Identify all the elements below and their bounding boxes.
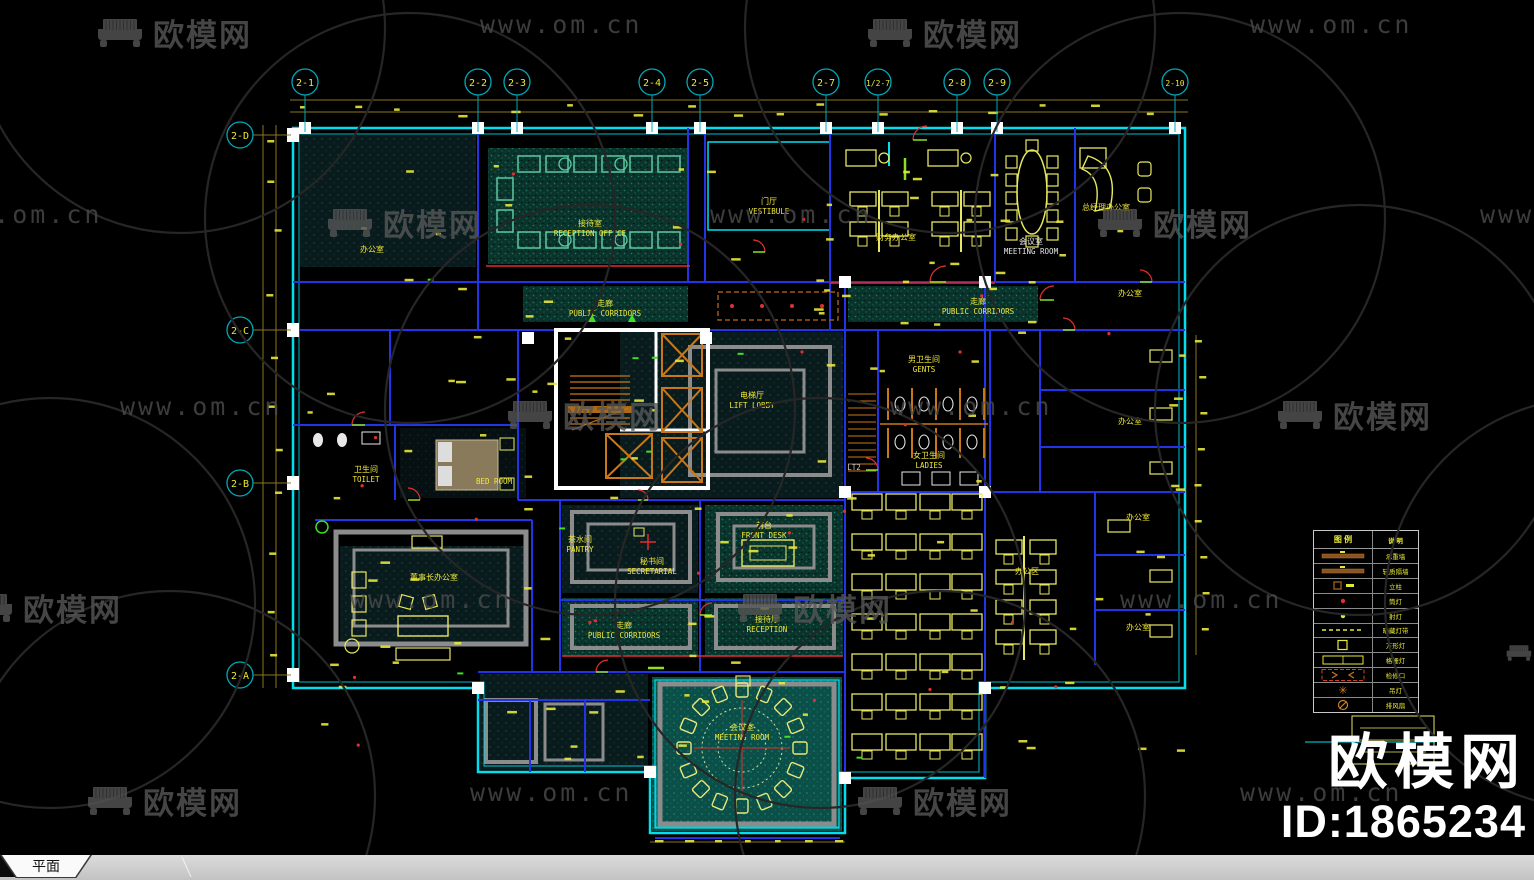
svg-text:2-D: 2-D	[231, 131, 249, 142]
legend-row: 暗藏灯带	[1314, 624, 1418, 639]
legend-row: 检修口	[1314, 668, 1418, 683]
room-label-cn: 董事长办公室	[410, 572, 458, 582]
svg-text:2-B: 2-B	[231, 479, 249, 490]
legend-row-label: 排风扇	[1373, 698, 1418, 712]
room-label-cn: 会议室	[730, 722, 754, 732]
room-label-cn: 接待厅	[755, 614, 779, 624]
room-label-en: MEETING ROOM	[1004, 247, 1059, 256]
legend-row: 轻质隔墙	[1314, 564, 1418, 579]
legend-symbol-sq	[1314, 638, 1373, 652]
room-label-cn: 办公室	[1118, 416, 1142, 426]
room-label-cn: 财务办公室	[876, 232, 916, 242]
legend-symbol-dash	[1314, 624, 1373, 638]
legend-symbol-dotr	[1314, 594, 1373, 608]
legend-symbol-doty	[1314, 609, 1373, 623]
room-label-en: LIFT LOBBY	[729, 401, 775, 410]
site-badge: 欧模网 ID:1865234	[1281, 733, 1526, 844]
room-label-en: FRONT DESK	[741, 531, 787, 540]
legend-row-label: 射灯	[1373, 609, 1418, 623]
svg-text:2-C: 2-C	[231, 326, 249, 337]
room-label-en: RECEPTION OFFICE	[554, 229, 627, 238]
room-label-en: LT2	[847, 463, 861, 472]
room-label-en: LADIES	[915, 461, 943, 470]
legend-row: 方形灯	[1314, 638, 1418, 653]
site-brand-text: 欧模网	[1281, 733, 1526, 793]
tab-plan-border[interactable]: 平面	[0, 855, 92, 878]
legend-row: 射灯	[1314, 609, 1418, 624]
room-label-en: SECRETARIAL	[627, 567, 677, 576]
legend-row-label: 吊灯	[1373, 683, 1418, 697]
svg-text:2-A: 2-A	[231, 671, 249, 682]
room-label-cn: 会议室	[1019, 236, 1043, 246]
legend-symbol-sqb	[1314, 579, 1373, 593]
room-label-en: RECEPTION	[747, 625, 788, 634]
legend-row-label: 暗藏灯带	[1373, 624, 1418, 638]
model-id-text: ID:1865234	[1281, 799, 1526, 844]
legend-row: 筒灯	[1314, 594, 1418, 609]
legend-header-symbol: 图 例	[1314, 531, 1373, 548]
room-label-cn: 男卫生间	[908, 354, 940, 364]
legend-table: 图 例 说 明 承重墙 轻质隔墙 立柱 筒灯 射灯 暗藏灯带 方形灯 格栅灯	[1313, 530, 1419, 713]
room-label-en: GENTS	[913, 365, 936, 374]
legend-symbol-dashbox	[1314, 668, 1373, 682]
svg-text:2-9: 2-9	[988, 78, 1006, 89]
tab-edge-decoration	[168, 857, 192, 877]
legend-row-label: 检修口	[1373, 668, 1418, 682]
room-label-cn: 卫生间	[354, 464, 378, 474]
cad-preview-stage: 2-12-22-32-42-52-71/2-72-82-92-102-D2-C2…	[0, 0, 1534, 880]
room-label-cn: 接待室	[578, 218, 602, 228]
svg-text:2-4: 2-4	[643, 78, 661, 89]
legend-symbol-slash	[1314, 698, 1373, 712]
room-label-en: PUBLIC CORRIDORS	[588, 631, 661, 640]
svg-text:✳: ✳	[1338, 685, 1347, 696]
legend-row-label: 轻质隔墙	[1373, 564, 1418, 578]
room-label-cn: 办公室	[1126, 512, 1150, 522]
room-label-en: PUBLIC CORRIDORS	[569, 309, 642, 318]
legend-symbol-rect	[1314, 653, 1373, 667]
legend-row: 格栅灯	[1314, 653, 1418, 668]
room-label-cn: 女卫生间	[913, 450, 945, 460]
legend-header-desc: 说 明	[1373, 531, 1418, 548]
room-label-cn: 茶水间	[568, 534, 592, 544]
room-label-cn: 办公室	[360, 244, 384, 254]
legend-row-label: 筒灯	[1373, 594, 1418, 608]
svg-text:2-5: 2-5	[691, 78, 709, 89]
svg-text:2-10: 2-10	[1165, 79, 1184, 88]
room-label-en: PANTRY	[566, 545, 594, 554]
room-label-cn: 门厅	[761, 196, 777, 206]
legend-row-label: 方形灯	[1373, 638, 1418, 652]
svg-text:2-1: 2-1	[296, 78, 314, 89]
room-label-cn: 办公区	[1015, 566, 1039, 576]
room-label-cn: 走廊	[597, 298, 613, 308]
legend-row-label: 立柱	[1373, 579, 1418, 593]
svg-text:2-7: 2-7	[817, 78, 835, 89]
legend-row: 立柱	[1314, 579, 1418, 594]
room-label-cn: 总经理办公室	[1082, 202, 1130, 212]
legend-row: 承重墙	[1314, 549, 1418, 564]
room-label-cn: 走廊	[970, 296, 986, 306]
room-label-cn: 办公室	[1126, 622, 1150, 632]
room-label-en: BED ROOM	[476, 477, 513, 486]
room-label-en: VESTIBULE	[749, 207, 790, 216]
room-label-cn: 办公室	[1118, 288, 1142, 298]
layout-tab-bar: 模型 平面	[0, 855, 1534, 880]
svg-text:1/2-7: 1/2-7	[866, 79, 890, 88]
legend-row-label: 承重墙	[1373, 549, 1418, 563]
room-label-cn: 前台	[756, 520, 772, 530]
room-label-cn: 电梯厅	[740, 390, 764, 400]
legend-symbol-bar	[1314, 564, 1373, 578]
room-label-en: TOILET	[352, 475, 380, 484]
legend-row: 排风扇	[1314, 698, 1418, 712]
svg-text:2-2: 2-2	[469, 78, 487, 89]
svg-text:2-3: 2-3	[508, 78, 526, 89]
room-label-cn: 秘书间	[640, 556, 664, 566]
legend-row: ✳ 吊灯	[1314, 683, 1418, 698]
legend-symbol-star: ✳	[1314, 683, 1373, 697]
room-label-cn: 走廊	[616, 620, 632, 630]
svg-text:2-8: 2-8	[948, 78, 966, 89]
room-label-en: MEETING ROOM	[715, 733, 770, 742]
tab-plan[interactable]: 平面	[1, 855, 91, 877]
legend-row-label: 格栅灯	[1373, 653, 1418, 667]
room-label-en: PUBLIC CORRIDORS	[942, 307, 1015, 316]
legend-symbol-bar	[1314, 549, 1373, 563]
